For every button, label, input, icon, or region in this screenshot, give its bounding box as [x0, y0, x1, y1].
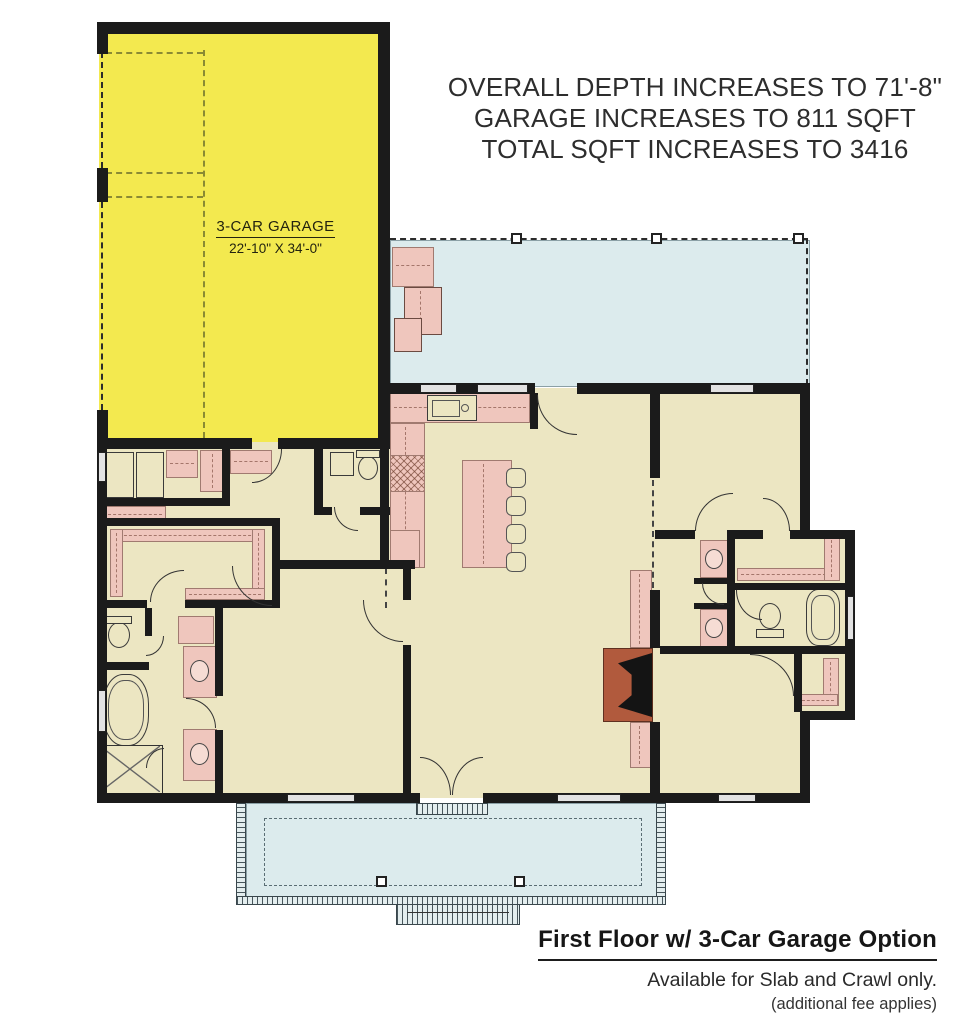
kitchen-greatroom-floor — [388, 388, 658, 798]
wall — [97, 410, 108, 440]
wall — [314, 507, 332, 515]
washer — [106, 452, 134, 498]
wall — [97, 22, 390, 34]
master-tub — [103, 674, 149, 746]
sink-basin — [432, 400, 460, 417]
porch-border — [236, 803, 246, 904]
kitchen-sink — [427, 395, 477, 421]
wall — [97, 438, 252, 449]
window — [98, 690, 106, 732]
caption-block: First Floor w/ 3-Car Garage Option Avail… — [538, 926, 937, 1014]
wall — [280, 560, 415, 569]
porch-edge-dashed — [390, 238, 808, 240]
sink-drain — [461, 404, 469, 412]
wall — [97, 498, 230, 506]
window — [710, 384, 754, 393]
outdoor-kitchen-counter — [392, 247, 434, 287]
window — [287, 794, 355, 802]
cased-opening — [652, 480, 654, 588]
closet-shelf — [824, 536, 840, 581]
wall — [97, 600, 147, 608]
wall — [650, 590, 660, 648]
firebox — [618, 653, 652, 717]
wall — [380, 447, 389, 568]
porch-edge-dashed — [806, 238, 808, 385]
wall — [727, 646, 855, 654]
wall — [314, 447, 323, 515]
window — [98, 452, 106, 482]
outdoor-cart — [394, 318, 422, 352]
bar-stool — [506, 552, 526, 572]
window — [847, 596, 854, 640]
garage-dimensions: 22'-10" X 34'-0" — [178, 241, 373, 256]
porch-roof-line — [264, 818, 642, 886]
garage-door-line — [101, 202, 103, 410]
annotation-line: TOTAL SQFT INCREASES TO 3416 — [438, 134, 952, 165]
wall — [215, 608, 223, 696]
powder-toilet-tank — [356, 450, 380, 458]
wall — [727, 530, 735, 654]
window — [718, 794, 756, 802]
garage-name: 3-CAR GARAGE — [216, 218, 334, 238]
annotation-line: OVERALL DEPTH INCREASES TO 71'-8" — [438, 72, 952, 103]
bar-stool — [506, 524, 526, 544]
porch-border — [656, 803, 666, 904]
bar-stool — [506, 496, 526, 516]
master-toilet-bowl — [108, 622, 130, 648]
window — [477, 384, 528, 393]
powder-toilet-bowl — [358, 456, 378, 480]
wall — [733, 530, 763, 539]
wall — [97, 793, 420, 803]
porch-post — [651, 233, 662, 244]
garage-bay-line — [106, 52, 203, 54]
laundry-counter — [166, 450, 198, 478]
wall — [650, 722, 660, 793]
porch-steps — [396, 904, 520, 925]
makeup-desk — [178, 616, 214, 644]
bath2-toilet-tank — [756, 629, 784, 638]
tub-inner — [811, 595, 835, 640]
wall — [278, 438, 390, 449]
wall — [272, 518, 280, 608]
bath2-toilet-bowl — [759, 603, 781, 629]
master-toilet-tank — [106, 616, 132, 624]
closet-shelf — [737, 568, 830, 581]
wall — [655, 530, 695, 539]
garage-label: 3-CAR GARAGE 22'-10" X 34'-0" — [178, 218, 373, 256]
floor-plan: 3-CAR GARAGE 22'-10" X 34'-0" — [0, 0, 959, 1024]
annotation-line: GARAGE INCREASES TO 811 SQFT — [438, 103, 952, 134]
porch-post — [376, 876, 387, 887]
window — [420, 384, 457, 393]
fireplace — [603, 648, 653, 722]
wall — [790, 530, 810, 539]
wall — [403, 645, 411, 793]
wall — [222, 449, 230, 501]
tub-inner — [108, 680, 144, 740]
bar-stool — [506, 468, 526, 488]
back-porch — [390, 240, 810, 387]
closet-shelf — [110, 529, 265, 542]
wall — [483, 793, 810, 803]
powder-sink — [330, 452, 354, 476]
step-line — [407, 912, 509, 913]
wall — [794, 654, 802, 712]
wall — [650, 383, 660, 478]
range — [390, 455, 425, 492]
vanity-sink — [705, 549, 723, 569]
wall — [800, 383, 810, 539]
caption-title: First Floor w/ 3-Car Garage Option — [538, 926, 937, 961]
kitchen-island — [462, 460, 512, 568]
caption-note: (additional fee applies) — [538, 995, 937, 1014]
vanity-sink — [190, 743, 209, 765]
wall — [97, 440, 107, 803]
fireplace-cabinet — [630, 722, 652, 768]
garage-bay-line — [106, 172, 203, 174]
wall — [403, 568, 411, 600]
fireplace-cabinet — [630, 570, 652, 648]
garage-door-line — [101, 52, 103, 168]
vanity-sink — [705, 618, 723, 638]
porch-post — [511, 233, 522, 244]
wall — [97, 662, 149, 670]
wall — [97, 168, 108, 202]
caption-availability: Available for Slab and Crawl only. — [538, 969, 937, 992]
bath2-tub — [806, 589, 840, 646]
annotation-block: OVERALL DEPTH INCREASES TO 71'-8" GARAGE… — [438, 72, 952, 165]
wall — [97, 22, 108, 54]
wall — [727, 583, 855, 590]
dryer — [136, 452, 164, 498]
porch-post — [793, 233, 804, 244]
wall — [800, 711, 810, 803]
wall — [145, 608, 152, 636]
garage-bay-line — [106, 196, 203, 198]
wall — [97, 518, 280, 526]
porch-post — [514, 876, 525, 887]
wall — [577, 383, 810, 394]
door-stoop — [416, 803, 488, 815]
wall — [660, 646, 727, 654]
closet-shelf — [798, 694, 838, 706]
window — [557, 794, 621, 802]
wall — [215, 730, 223, 793]
vanity-sink — [190, 660, 209, 682]
closet-shelf — [110, 529, 123, 597]
